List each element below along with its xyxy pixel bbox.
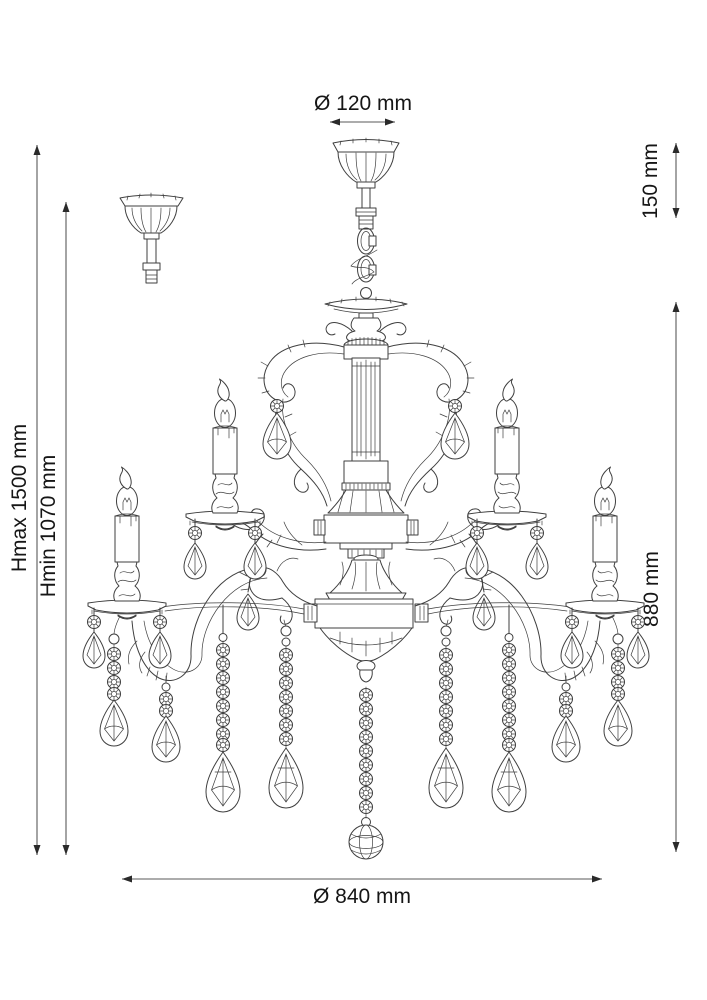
central-crystal-strand: [360, 687, 373, 827]
hmax-label: Hmax 1500 mm: [8, 424, 31, 572]
canopy-front-view: [333, 138, 399, 188]
chandelier-dimension-drawing: Hmax 1500 mm Hmin 1070 mm Ø 120 mm 150 m…: [0, 0, 707, 1000]
chain-assembly: [351, 188, 377, 304]
dimension-suspension-height: 150 mm: [639, 143, 680, 219]
canopy-side-view: [120, 193, 183, 283]
dimension-body-height: 880 mm: [640, 302, 680, 852]
dimension-canopy-diameter: Ø 120 mm: [314, 92, 412, 126]
technical-drawing-page: Hmax 1500 mm Hmin 1070 mm Ø 120 mm 150 m…: [0, 0, 707, 1000]
faceted-ball-finial: [349, 825, 383, 859]
left-assembly: [83, 323, 352, 812]
suspension-height-label: 150 mm: [639, 143, 662, 219]
right-assembly: [380, 323, 649, 812]
body-height-label: 880 mm: [640, 551, 663, 627]
dimension-hmin: Hmin 1070 mm: [37, 202, 70, 855]
dimension-body-diameter: Ø 840 mm: [122, 876, 602, 909]
central-column: [315, 297, 413, 682]
canopy-diameter-label: Ø 120 mm: [314, 92, 412, 115]
dimension-hmax: Hmax 1500 mm: [8, 145, 41, 855]
lower-hub-band: [315, 599, 413, 628]
hmin-label: Hmin 1070 mm: [37, 455, 60, 597]
body-diameter-label: Ø 840 mm: [313, 885, 411, 908]
upper-hub-band: [324, 515, 408, 543]
